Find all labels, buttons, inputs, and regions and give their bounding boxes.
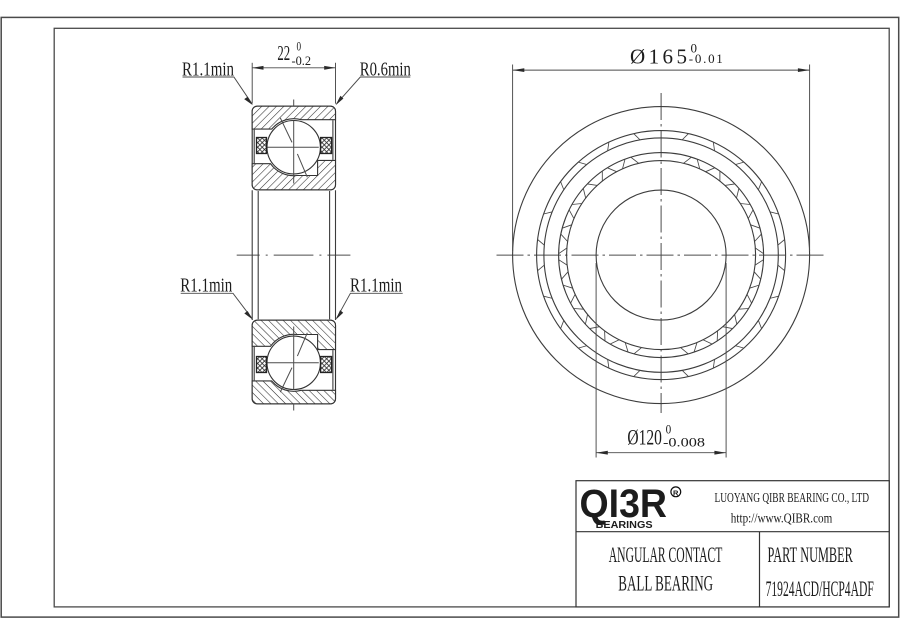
svg-text:22: 22 xyxy=(277,41,290,65)
svg-text:-0.2: -0.2 xyxy=(292,53,312,68)
svg-text:Ø120: Ø120 xyxy=(627,425,662,450)
svg-text:Ø165: Ø165 xyxy=(630,45,687,69)
svg-text:-0.008: -0.008 xyxy=(663,435,705,450)
svg-text:R: R xyxy=(673,489,679,498)
svg-text:BEARINGS: BEARINGS xyxy=(596,519,653,531)
svg-text:BALL BEARING: BALL BEARING xyxy=(618,570,713,595)
svg-text:http://www.QIBR.com: http://www.QIBR.com xyxy=(731,511,833,526)
svg-text:LUOYANG QIBR BEARING CO., LTD: LUOYANG QIBR BEARING CO., LTD xyxy=(715,490,870,505)
svg-text:ANGULAR CONTACT: ANGULAR CONTACT xyxy=(609,542,723,567)
svg-text:0: 0 xyxy=(297,39,302,54)
svg-text:71924ACD/HCP4ADF: 71924ACD/HCP4ADF xyxy=(766,576,874,601)
svg-text:-0.01: -0.01 xyxy=(689,51,723,66)
svg-text:PART NUMBER: PART NUMBER xyxy=(768,542,854,567)
